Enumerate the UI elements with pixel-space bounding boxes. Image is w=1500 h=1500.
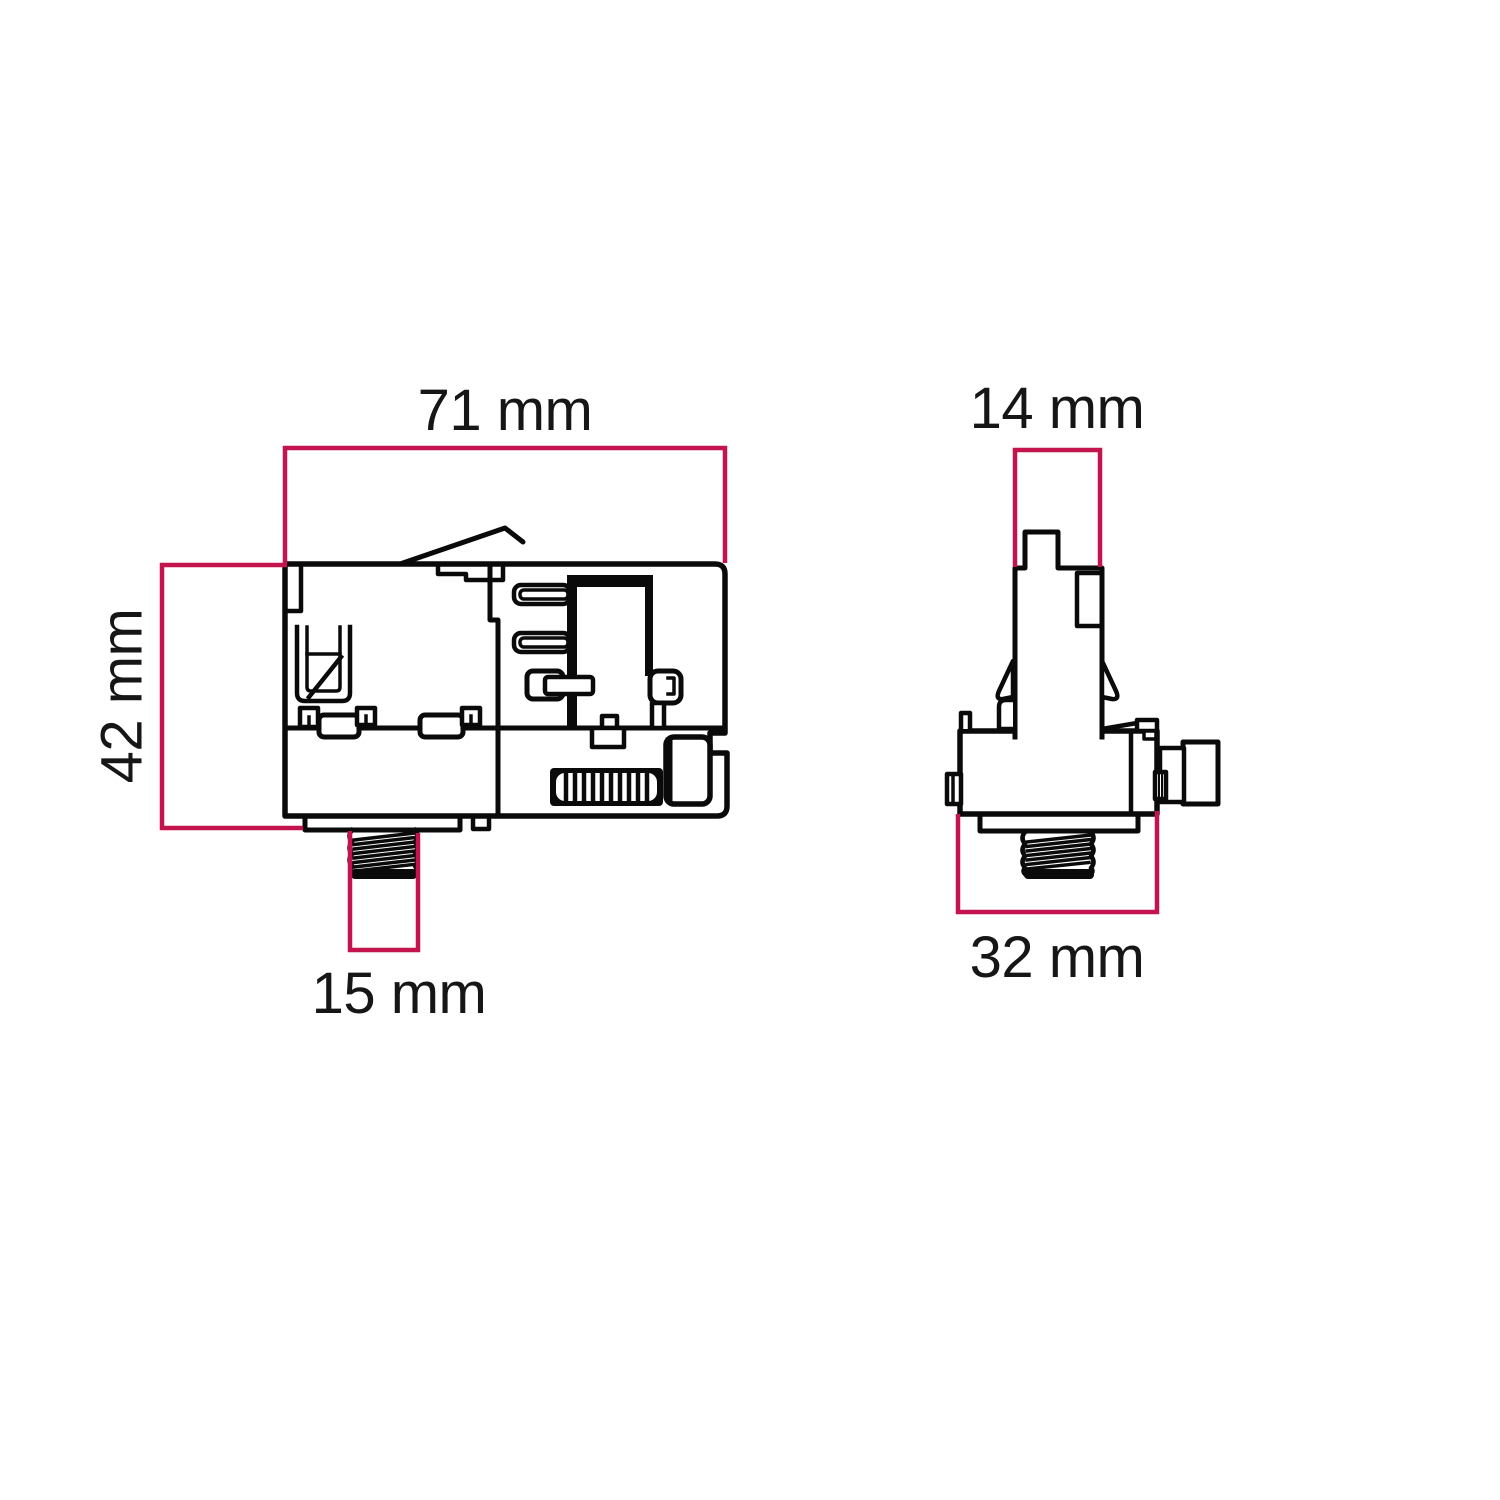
side-tab-left: [947, 774, 961, 804]
shoulder-pin: [961, 713, 970, 729]
side-view-drawing: [285, 528, 727, 879]
right-wing: [1102, 661, 1117, 699]
dimension-label-14mm: 14 mm: [970, 376, 1145, 441]
side-tab-right: [1155, 772, 1166, 799]
stem: [1015, 532, 1102, 737]
ribbed-grip: [550, 768, 663, 806]
end-view-drawing: [947, 532, 1218, 879]
dimension-line-71mm: [285, 448, 725, 563]
technical-drawing-canvas: 71 mm 42 mm 15 mm 14 mm 32 mm: [0, 0, 1500, 1500]
dimension-label-71mm: 71 mm: [418, 378, 593, 443]
lever-paddle: [666, 737, 710, 804]
side-connector-block: [1160, 742, 1218, 804]
release-lever: [400, 528, 523, 564]
dimension-label-32mm: 32 mm: [970, 925, 1145, 990]
left-wing: [998, 661, 1013, 699]
shoulder-slant: [1102, 723, 1137, 729]
shoulder-step: [1144, 731, 1156, 739]
fuse-clip: [297, 627, 350, 701]
dimension-label-42mm: 42 mm: [89, 609, 154, 784]
dimension-line-42mm: [162, 565, 303, 828]
end-body: [960, 731, 1157, 814]
contact-prong: [514, 585, 570, 604]
end-thread-stud: [1023, 832, 1095, 879]
dimension-label-15mm: 15 mm: [312, 961, 487, 1026]
contact-prong: [514, 633, 570, 652]
thread-stud: [350, 830, 418, 879]
dimension-drawing: 71 mm 42 mm 15 mm 14 mm 32 mm: [0, 0, 1500, 1500]
left-foot: [999, 700, 1013, 729]
